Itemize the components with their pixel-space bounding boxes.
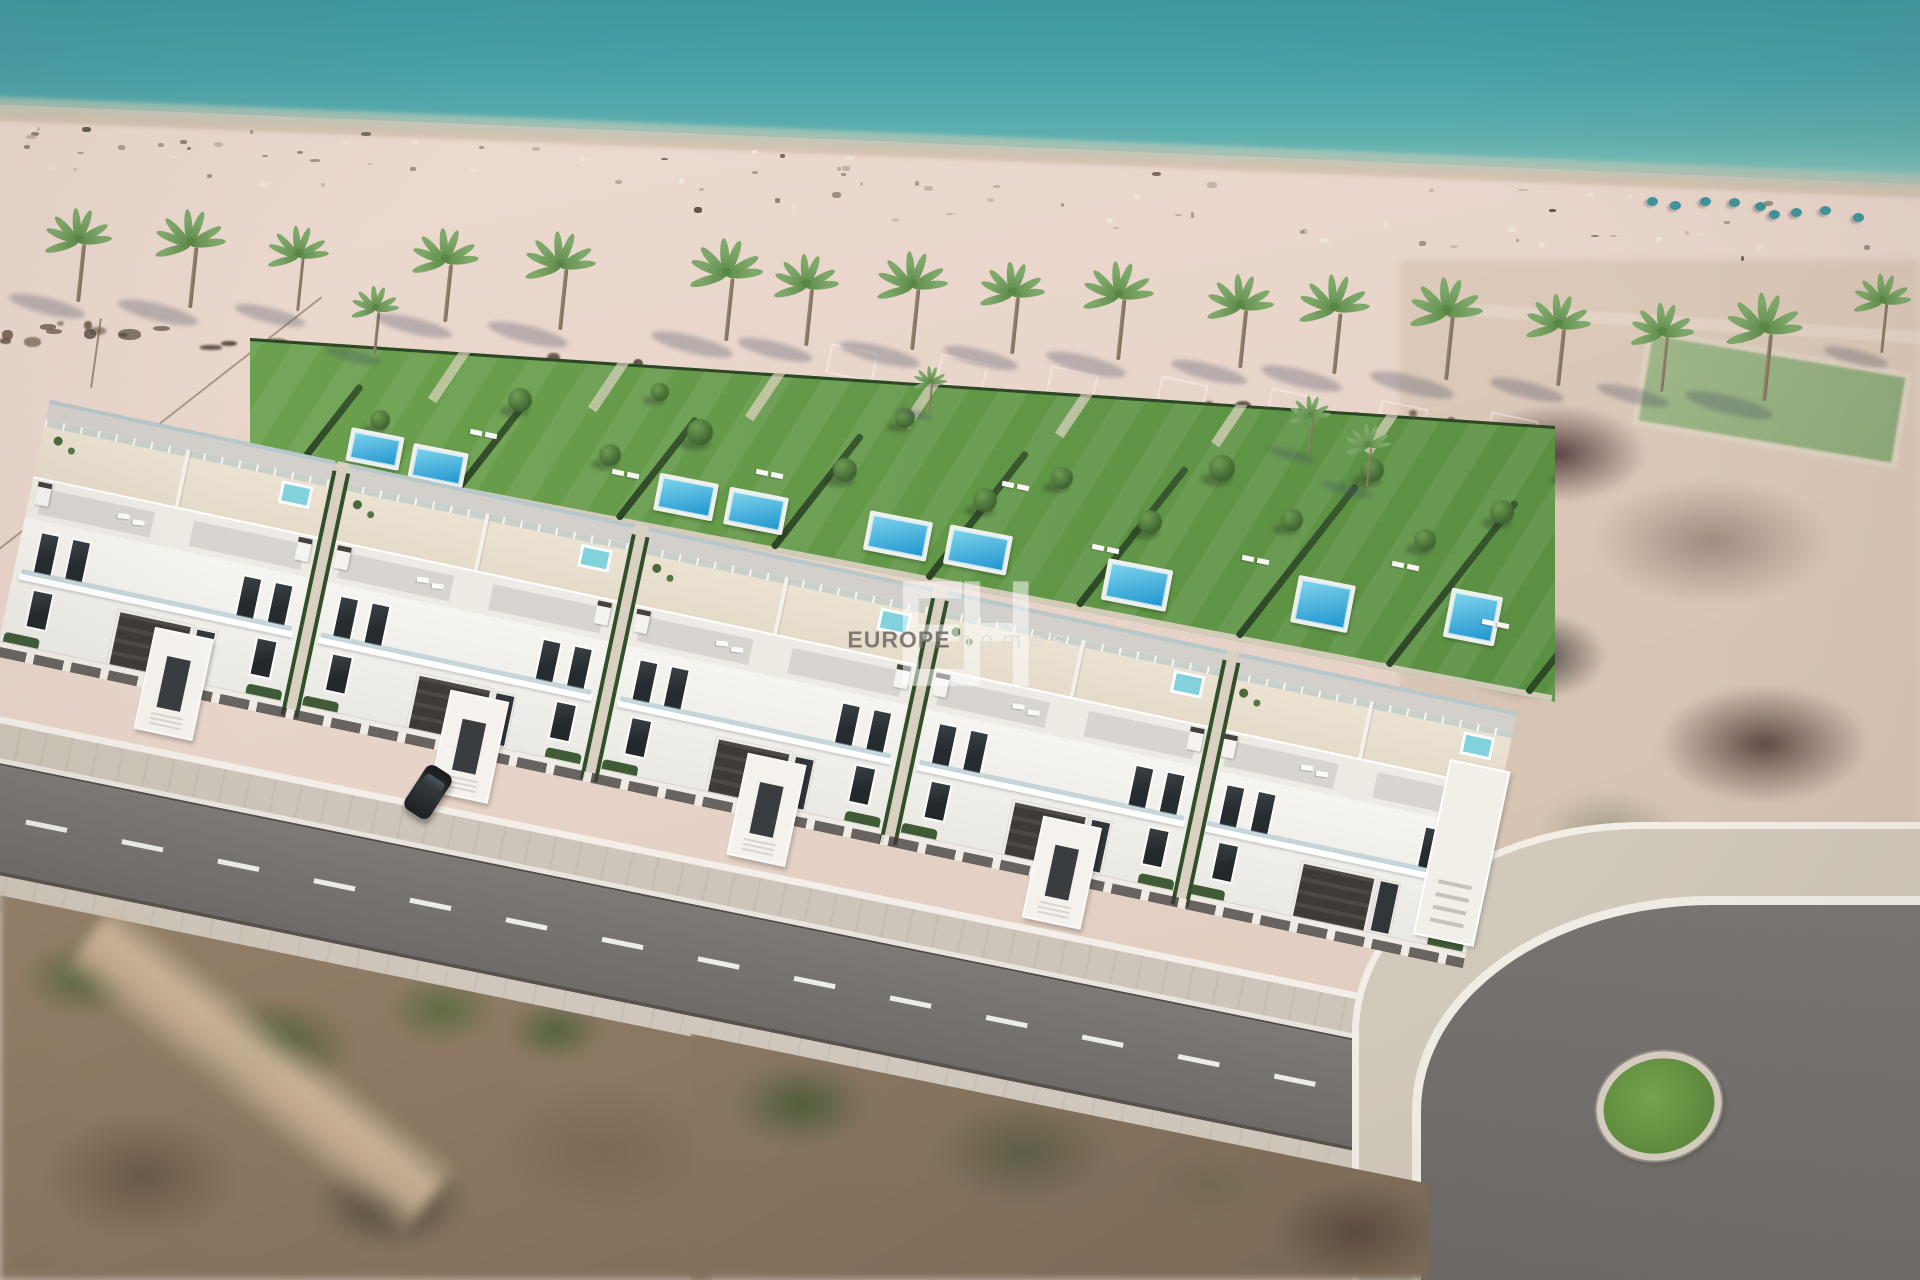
palm-crown-center [372,304,378,310]
debris-rock [2,330,12,340]
beach-speck [1656,237,1662,242]
beach-speck [262,155,269,157]
beach-speck [1133,194,1140,200]
garden-tree [1209,455,1235,481]
beach-speck [321,183,325,186]
garden-tree [1414,529,1436,551]
beach-speck [915,181,919,186]
beach-speck [860,182,863,186]
beach-speck [832,192,841,198]
beach-speck [410,167,416,171]
beach-speck [1628,194,1631,199]
beach-parasol [1820,206,1831,215]
beach-speck [361,132,371,136]
garden-tree [508,388,532,412]
beach-speck [1419,241,1426,245]
beach-speck [752,171,758,174]
beach-parasol [1729,198,1740,207]
beach-speck [1382,223,1390,227]
beach-speck [1549,209,1555,212]
garden-tree [1360,458,1384,482]
portico-doorway [749,782,783,838]
beach-speck [207,174,212,177]
palm-crown-center [1308,411,1314,416]
beach-speck [368,163,372,165]
beach-speck [1300,230,1304,233]
garden-tree [1051,467,1073,489]
beach-speck [82,127,90,132]
beach-speck [342,141,351,144]
beach-speck [846,156,855,161]
beach-speck [1591,235,1600,237]
beach-speck [1429,189,1434,193]
palm-crown-center [1879,296,1887,303]
beach-parasol [1769,210,1780,219]
beach-speck [1320,238,1329,243]
beach-speck [615,180,622,185]
beach-speck [1518,189,1528,192]
debris-rock [153,326,170,332]
palm-trunk [724,278,734,341]
pool-water [1105,563,1168,607]
beach-parasol [1647,197,1658,206]
palm-crown-center [1330,302,1340,310]
garden-tree [1138,510,1162,534]
garden-tree [1281,509,1303,531]
debris-rock [118,329,141,340]
palm-trunk [1238,310,1248,368]
palm-shadow [7,289,87,323]
pool-water [867,515,928,557]
beach-parasol [1791,208,1802,217]
garden-tree [687,419,713,445]
palm-shadow [486,316,570,352]
beach-speck [214,142,223,148]
beach-speck [679,178,685,184]
beach-speck [73,168,77,171]
beach-speck [297,151,303,154]
palm-trunk [910,289,920,350]
debris-rock [46,329,62,334]
palm-crown-center [1759,322,1769,331]
beach-speck [1061,203,1064,206]
beach-parasol [1670,201,1681,210]
beach-speck [699,188,704,191]
pool-water [728,491,785,530]
beach-speck [180,140,187,144]
beach-speck [172,156,181,158]
palm-crown-center [1442,305,1452,314]
beach-speck [1741,256,1744,261]
debris-rock [221,341,238,346]
beach-speck [1191,212,1194,218]
beach-speck [1152,172,1161,176]
beach-speck [532,147,540,150]
beach-speck [775,198,781,202]
garden-tree [833,458,857,482]
beach-speck [310,159,320,162]
palm-crown-center [1365,441,1371,446]
beach-speck [1864,245,1870,250]
beach-speck [892,218,898,222]
beach-speck [470,169,478,172]
beach-speck [37,127,40,131]
beach-speck [780,154,785,159]
beach-speck [841,173,847,176]
garden-tree [370,410,390,430]
beach-speck [412,140,417,145]
palm-crown-center [294,249,302,256]
garden-pool [1443,587,1504,646]
palm-crown-center [441,254,450,262]
beach-speck [694,207,702,213]
beach-speck [259,182,267,187]
palm-crown-center [1236,300,1245,308]
beach-speck [187,147,191,150]
garden-tree [1490,500,1514,524]
debris-rock [200,345,222,349]
palm-crown-center [74,234,83,242]
beach-speck [1695,233,1705,236]
palm-shadow [116,294,200,330]
portico-doorway [452,719,486,775]
beach-speck [993,185,999,188]
beach-speck [1516,239,1519,242]
beach-parasol [1853,213,1864,222]
palm-crown-center [928,379,933,383]
palm-trunk [296,259,305,312]
debris-rock [57,321,64,326]
beach-speck [77,152,85,155]
palm-trunk [188,247,198,308]
pool-water [658,477,715,516]
pool-water [1447,592,1498,642]
beach-speck [26,135,36,140]
beach-speck [24,145,30,149]
debris-rock [84,329,96,338]
pool-water [947,529,1008,571]
beach-speck [1756,244,1763,249]
pool-water [350,432,400,466]
beach-speck [1685,231,1689,235]
palm-trunk [76,244,86,302]
palm-crown-center [1658,327,1667,335]
portico-doorway [1045,845,1079,901]
tower-louvres [1429,879,1472,933]
palm-trunk [558,269,568,330]
palm-shadow [650,326,736,363]
beach-speck [1724,221,1730,223]
palm-trunk [1332,313,1342,375]
beach-speck [1508,227,1516,232]
garden-tree [973,488,997,512]
beach-speck [946,213,954,215]
portico-doorway [157,656,191,712]
palm-trunk [804,289,813,346]
palm-shadow [374,309,454,343]
debris-rock [24,337,41,347]
beach-speck [1586,193,1595,198]
debris-rock [84,321,92,330]
beach-speck [1450,245,1458,248]
beach-speck [1175,214,1183,216]
beach-parasol [1755,202,1766,211]
pool-water [1295,580,1352,629]
aerial-render-scene: EH EUROPEhomes [0,0,1920,1280]
beach-speck [1610,235,1617,238]
beach-speck [479,146,485,149]
palm-shadow [233,300,306,332]
garden-tree [599,444,621,466]
beach-speck [842,166,849,170]
garden-tree [651,383,669,401]
palm-trunk [1010,297,1019,354]
beach-speck [1106,218,1113,223]
beach-speck [250,130,253,134]
beach-speck [1538,242,1546,247]
beach-speck [987,198,994,202]
beach-speck [47,166,56,171]
beach-speck [1113,227,1118,229]
beach-speck [158,143,164,148]
beach-speck [924,186,932,191]
beach-speck [579,157,586,161]
palm-trunk [1116,299,1126,360]
palm-trunk [443,264,453,322]
beach-speck [752,150,758,154]
beach-speck [661,158,668,160]
beach-parasol [1700,197,1711,206]
beach-speck [1207,182,1217,188]
beach-speck [118,145,125,150]
beach-speck [837,167,840,172]
beach-speck [793,204,796,209]
